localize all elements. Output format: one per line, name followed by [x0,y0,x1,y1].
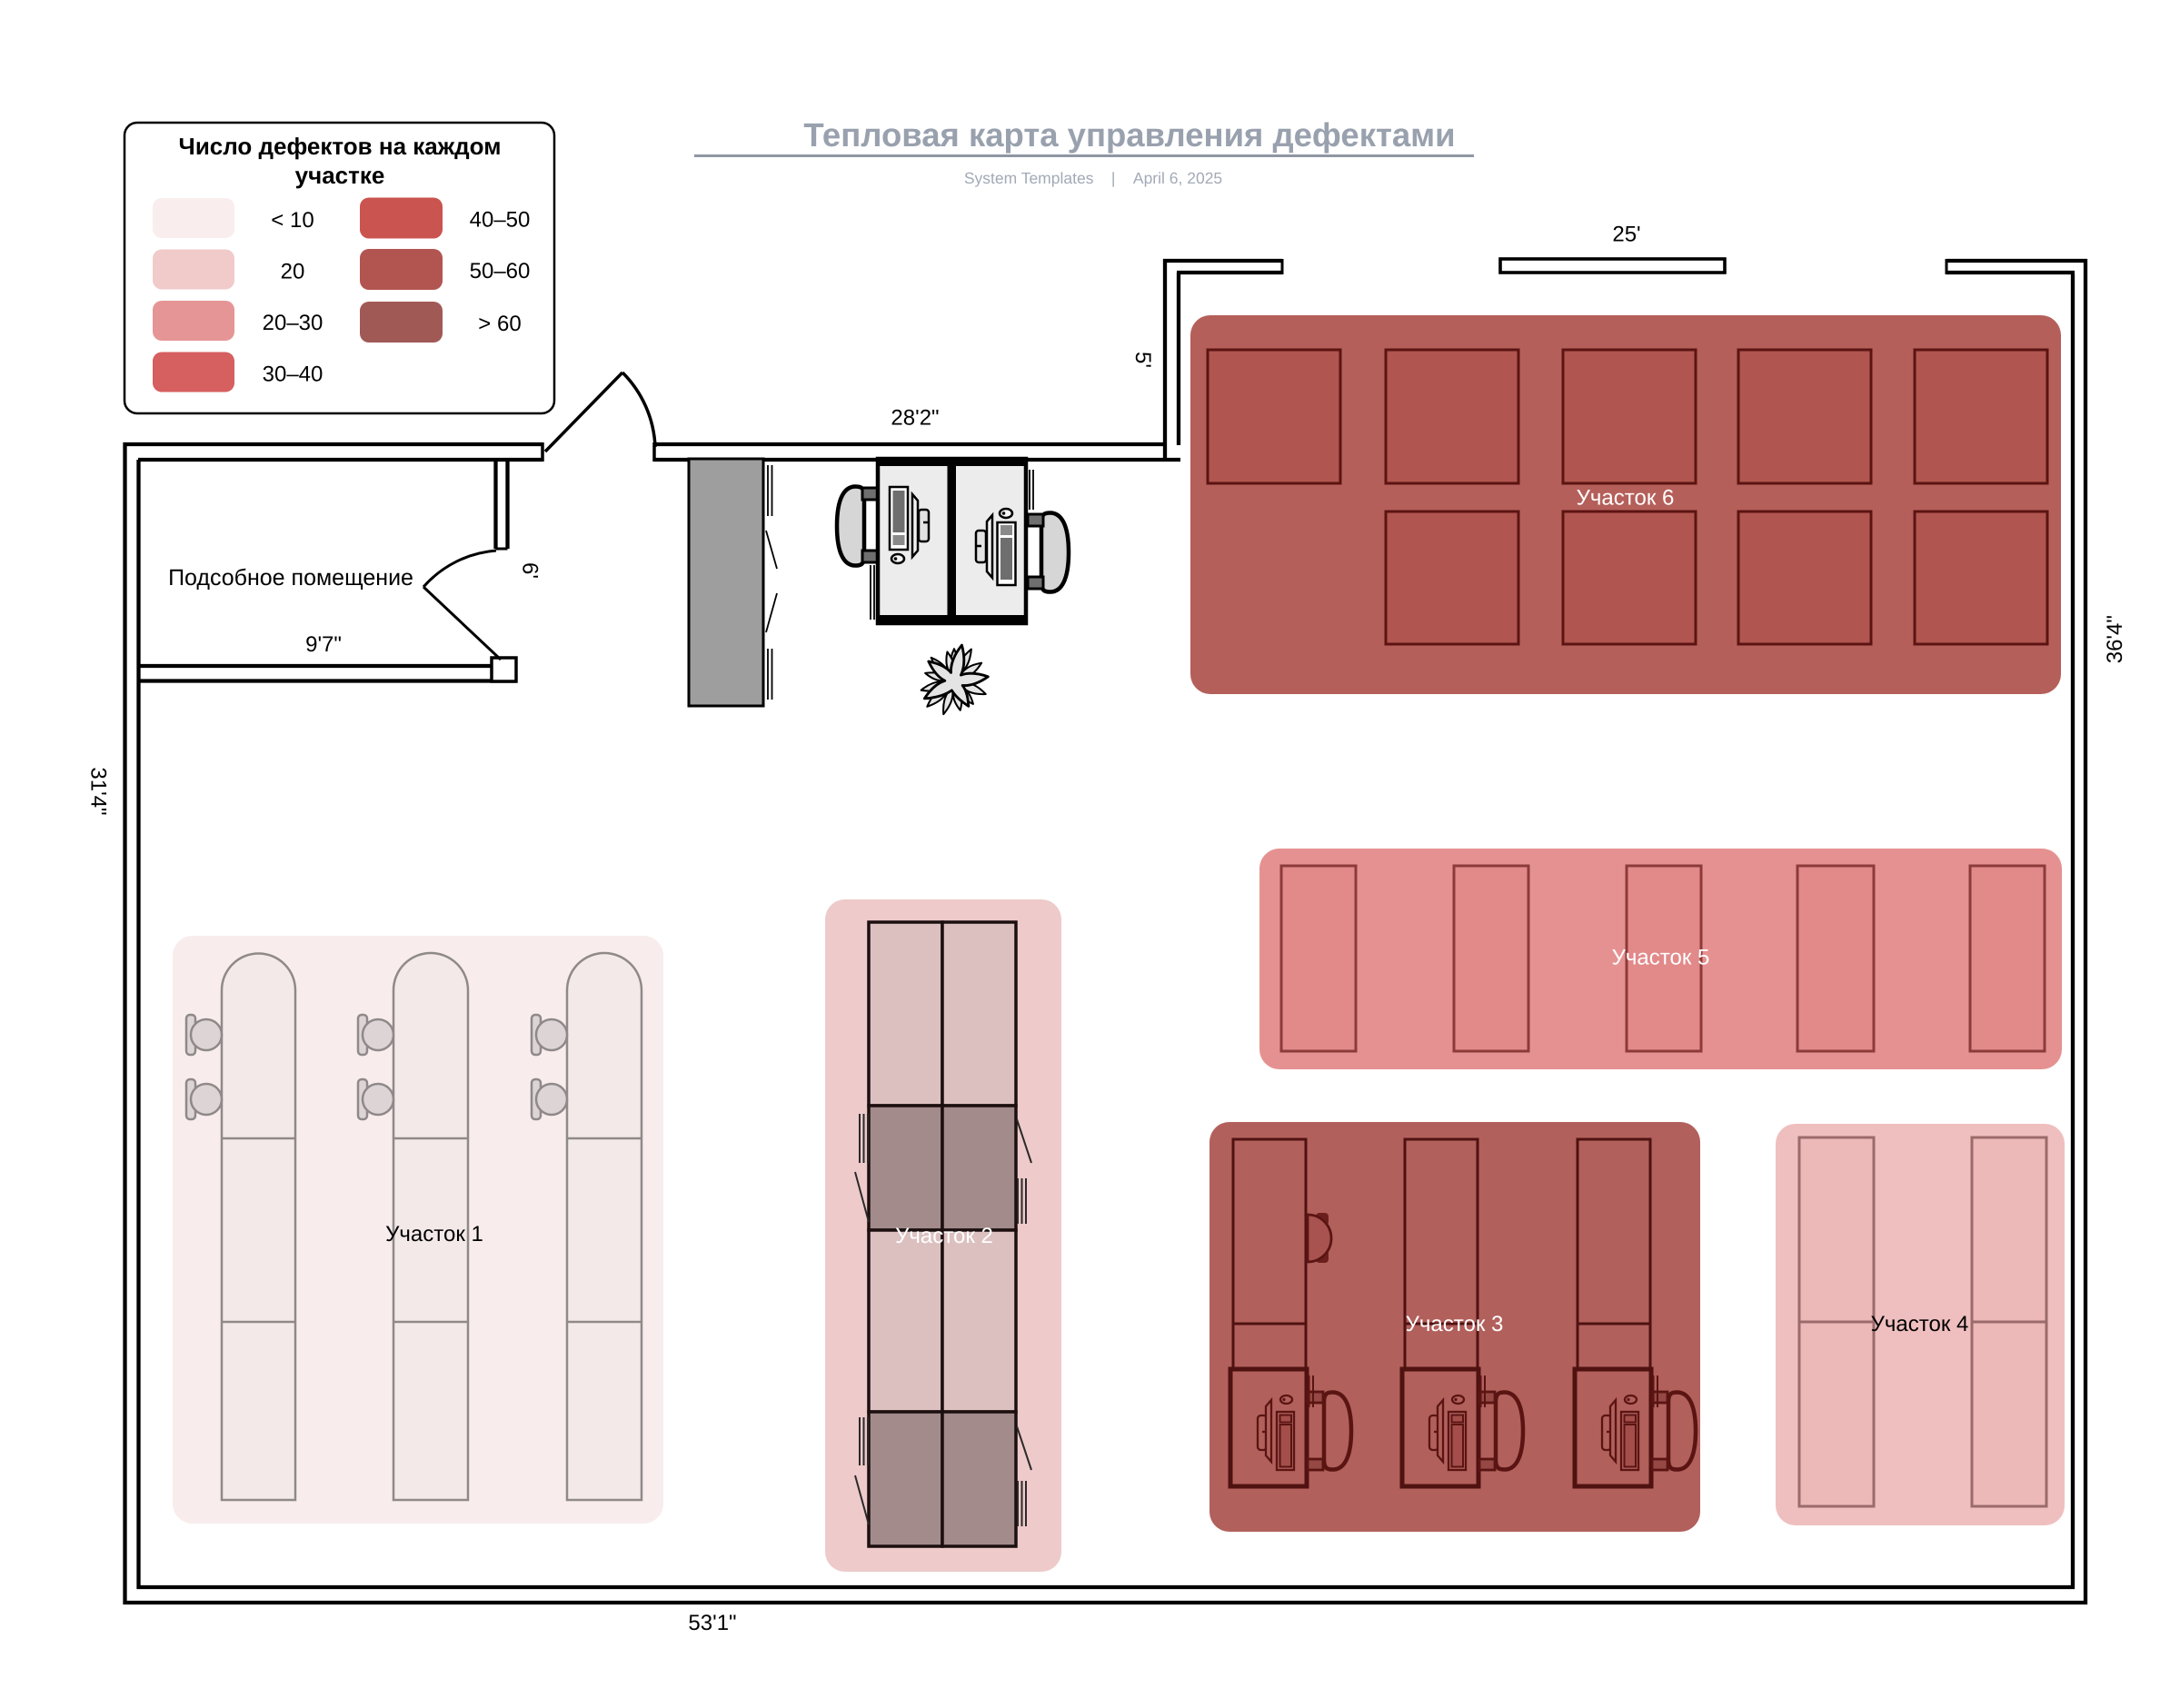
svg-text:9'7": 9'7" [305,632,342,657]
svg-text:Участок 3: Участок 3 [1406,1312,1504,1336]
svg-text:Участок 1: Участок 1 [385,1222,483,1246]
svg-text:участке: участке [295,162,385,189]
svg-text:36'4": 36'4" [2103,615,2127,663]
svg-text:5': 5' [1130,352,1155,368]
svg-text:System Templates | April: System Templates | April 6, 2025 [964,169,1222,187]
svg-text:6': 6' [518,562,543,579]
svg-text:28'2": 28'2" [891,406,939,431]
svg-text:Подсобное помещение: Подсобное помещение [168,565,413,591]
svg-text:< 10: < 10 [271,208,314,233]
svg-text:20–30: 20–30 [263,311,324,335]
svg-text:> 60: > 60 [478,312,521,336]
svg-text:Участок 4: Участок 4 [1871,1312,1969,1336]
svg-text:Тепловая карта управления дефе: Тепловая карта управления дефектами [803,116,1455,154]
svg-text:25': 25' [1612,223,1640,247]
svg-text:50–60: 50–60 [470,259,531,283]
svg-text:40–50: 40–50 [470,208,531,233]
svg-text:Участок 2: Участок 2 [895,1224,993,1248]
svg-text:20: 20 [281,260,305,284]
svg-text:53'1": 53'1" [688,1611,736,1635]
svg-text:Участок 6: Участок 6 [1577,486,1675,511]
svg-text:Число дефектов на каждом: Число дефектов на каждом [179,133,502,160]
svg-text:31'4": 31'4" [86,767,111,815]
svg-text:30–40: 30–40 [263,362,324,387]
svg-text:Участок 5: Участок 5 [1612,946,1710,970]
